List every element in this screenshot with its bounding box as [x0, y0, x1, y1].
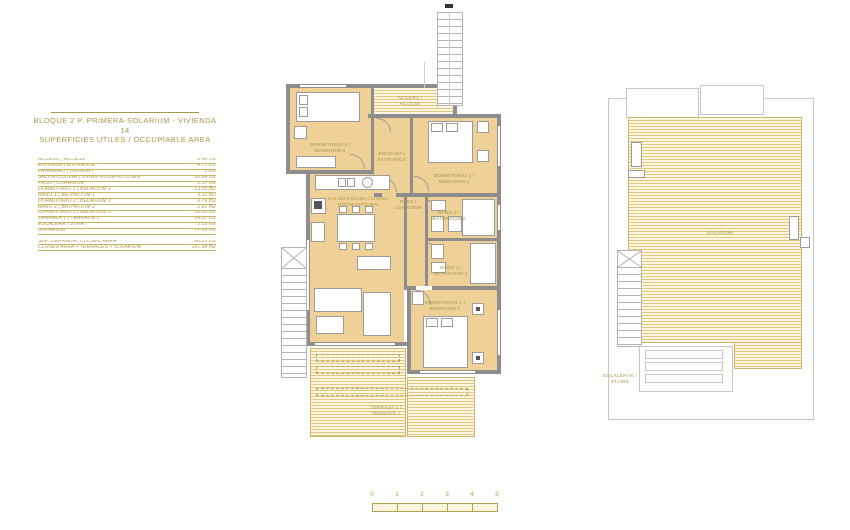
area-value: 2.62 m2	[197, 205, 216, 210]
label-bedroom2: DORMITORIO 2 / BEDROOM 2	[428, 174, 480, 186]
area-value: 4.71 m2	[197, 164, 216, 169]
area-value: 10.06 m2	[194, 211, 216, 216]
toilet	[431, 244, 444, 259]
sink	[338, 178, 346, 187]
solarium-deck-extension	[734, 342, 802, 369]
dining-table	[337, 214, 375, 242]
window	[315, 343, 395, 345]
area-value: 5.29 m2	[197, 223, 216, 228]
planter-row	[645, 362, 723, 371]
area-label: DORMITORIO 2 | BEDROOM 2	[38, 199, 111, 204]
pergola-slats	[316, 366, 400, 374]
pillow	[431, 123, 443, 132]
label-solarium: SOLARIUM	[695, 231, 745, 237]
area-value: 197.38 m2	[191, 245, 216, 250]
nightstand	[477, 121, 489, 133]
window	[300, 85, 346, 87]
pillow	[299, 95, 308, 105]
deck-fixture	[800, 237, 810, 248]
wall	[410, 118, 413, 197]
area-label: DORMITORIO 1 | BEDROOM 1	[38, 187, 111, 192]
title-rule	[51, 112, 199, 113]
area-label: BAÑO 1 | BATHROOM 1	[38, 193, 95, 198]
area-value: 3.32 m2	[197, 193, 216, 198]
areas-table: ACCESO | ACCESS3.46 m2 ENTRADA | ENTRANC…	[38, 158, 216, 251]
nightstand-mark	[476, 307, 480, 311]
area-label: SOLARIUM	[38, 229, 65, 234]
wall	[428, 238, 501, 241]
sheet-subtitle: SUPERFICIES ÚTILES / OCCUPIABLE AREA	[30, 135, 220, 145]
external-stair	[437, 12, 463, 106]
pillow	[441, 318, 453, 327]
summary-row: CLOSED AREA + TERRACES + SOLARIUM197.38 …	[38, 245, 216, 251]
nightstand	[294, 126, 307, 139]
wall	[286, 84, 290, 174]
area-label: ENTRADA | ENTRANCE	[38, 164, 95, 169]
area-label: BAÑO 2 | BATHROOM 2	[38, 205, 95, 210]
stove	[362, 177, 373, 188]
area-value: 24.87 m2	[194, 217, 216, 222]
area-value: 1.17 m2	[197, 182, 216, 187]
label-entrance: ENTRADA / ENTRANCE	[374, 152, 410, 164]
label-stairs: ESCALERAS / STAIRS	[596, 374, 644, 386]
planter-row	[645, 374, 723, 383]
stair-landing	[617, 250, 642, 268]
area-label: SUP. CERRADA | CLOSED AREA	[38, 240, 117, 245]
tv-unit	[363, 292, 391, 336]
chair	[365, 243, 373, 250]
label-access: ACCESO / ACCESS	[392, 96, 428, 108]
area-value: 9.79 m2	[197, 199, 216, 204]
area-value: 13.05 m2	[194, 187, 216, 192]
label-bedroom1: DORMITORIO 1 / BEDROOM 1	[418, 301, 472, 313]
nightstand	[477, 150, 489, 162]
roof-box	[626, 88, 699, 118]
pillow	[426, 318, 438, 327]
terrace-deck	[407, 377, 475, 437]
title-block: BLOQUE 2 P. PRIMERA-SOLARIUM - VIVIENDA …	[30, 112, 220, 145]
area-value: 30.54 m2	[194, 176, 216, 181]
wall	[286, 170, 374, 174]
pillow	[299, 107, 308, 117]
area-label: SALÓN-COCINA | LIVING ROOM-KITCHEN	[38, 176, 140, 181]
label-bathroom1: BAÑO 1 / BATHROOM 1	[430, 266, 472, 278]
area-label: TERRAZA 1 | TERRACE 1	[38, 217, 99, 222]
area-value: 77.09 m2	[194, 229, 216, 234]
sofa	[314, 288, 362, 312]
appliance-mark	[314, 201, 322, 209]
label-corridor: PASO / CORRIDOR	[394, 200, 422, 212]
label-terrace1: TERRAZA 1 / TERRACE 1	[362, 406, 410, 418]
dresser	[296, 156, 336, 168]
area-label: PASO | CORRIDOR	[38, 182, 84, 187]
scale-tick-label: 4	[470, 491, 474, 498]
roof-box	[700, 85, 764, 115]
pillow	[446, 123, 458, 132]
wall	[368, 114, 501, 118]
area-label: DORMITORIO 3 | BEDROOM 3	[38, 211, 111, 216]
scale-tick	[397, 504, 398, 511]
armchair	[316, 316, 344, 334]
sink	[347, 178, 355, 187]
stair-top-mark	[445, 4, 453, 8]
wall	[432, 286, 501, 290]
deck-fixture	[631, 142, 642, 167]
scale-tick	[447, 504, 448, 511]
scale-tick	[472, 504, 473, 511]
area-value: 90.13 m2	[194, 240, 216, 245]
label-living-kitchen: SALÓN-COCINA / LIVING ROOM-KITCHEN	[327, 197, 389, 209]
deck-fixture	[628, 170, 645, 178]
area-value: 0 m2	[204, 170, 216, 175]
scale-bar	[372, 503, 498, 512]
stair-rail	[449, 12, 450, 106]
deck-fixture	[789, 216, 799, 240]
nightstand-mark	[476, 356, 480, 360]
solarium-stair	[617, 267, 642, 347]
solarium-deck	[628, 117, 802, 343]
area-label: ACCESO | ACCESS	[38, 158, 85, 163]
sheet-title: BLOQUE 2 P. PRIMERA-SOLARIUM - VIVIENDA …	[30, 116, 220, 135]
scale-tick	[422, 504, 423, 511]
pergola-slats	[316, 388, 468, 396]
scale-tick-label: 3	[445, 491, 449, 498]
window	[498, 310, 500, 355]
floor-plan-sheet: BLOQUE 2 P. PRIMERA-SOLARIUM - VIVIENDA …	[0, 0, 850, 530]
window	[498, 126, 500, 166]
side-stair	[281, 268, 307, 378]
planter-row	[645, 350, 723, 359]
wall	[407, 286, 411, 374]
area-label: CLOSED AREA + TERRACES + SOLARIUM	[38, 245, 141, 250]
wall	[396, 193, 501, 197]
scale-tick-label: 1	[395, 491, 399, 498]
chair	[352, 243, 360, 250]
appliance	[311, 222, 325, 242]
wardrobe	[470, 243, 496, 284]
label-bathroom2: BAÑO 2 / BATHROOM 2	[428, 211, 470, 223]
area-label: ESCALERA / STAIR	[38, 223, 85, 228]
scale-tick-label: 2	[420, 491, 424, 498]
scale-tick-label: 0	[370, 491, 374, 498]
window	[498, 205, 500, 230]
window	[307, 240, 309, 310]
window	[420, 371, 475, 373]
label-bedroom3: DORMITORIO 3 / BEDROOM 3	[306, 143, 354, 155]
area-label: LAVADERO | LAUNDRY	[38, 170, 94, 175]
chair	[339, 243, 347, 250]
scale-tick-label: 5	[495, 491, 499, 498]
site-line	[424, 62, 425, 88]
washbasin	[431, 200, 446, 211]
area-value: 3.46 m2	[197, 158, 216, 163]
side-stair-landing	[281, 247, 307, 269]
console	[357, 256, 391, 270]
pergola-slats	[316, 354, 400, 362]
